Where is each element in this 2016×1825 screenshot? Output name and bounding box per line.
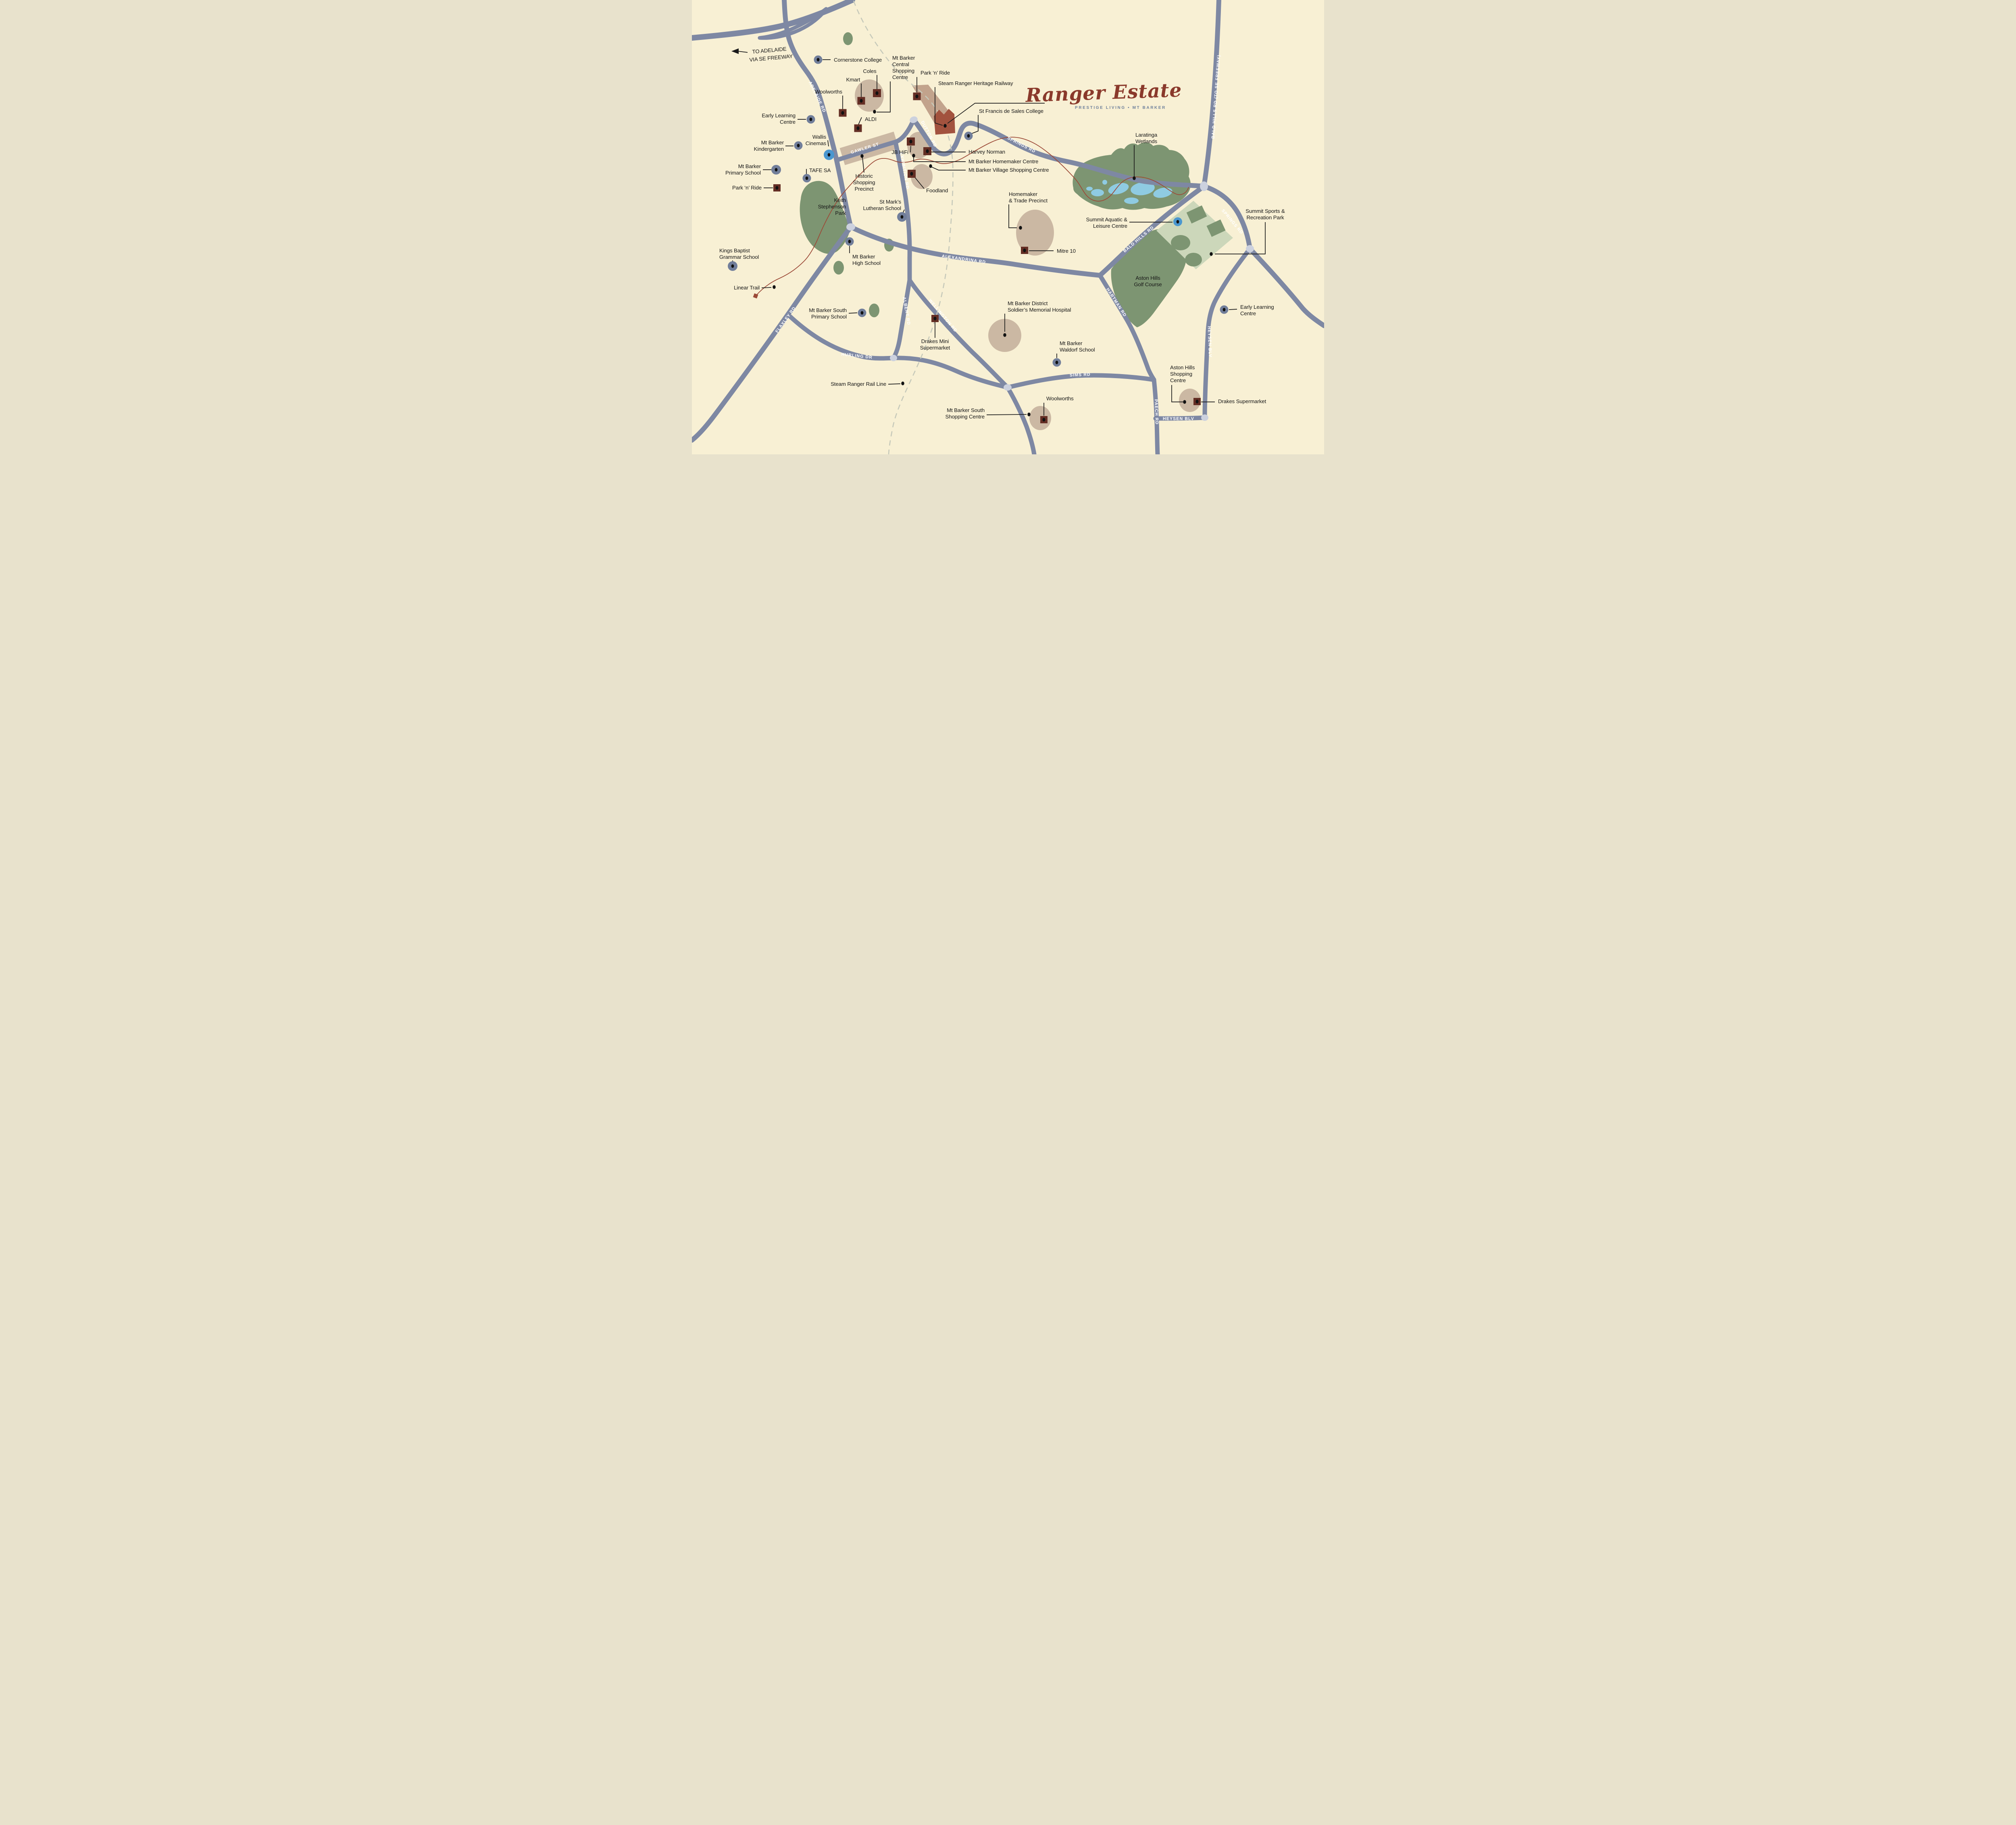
road-label-heysen-blv: HEYSEN BLV	[1163, 416, 1194, 421]
tafe-sa-dot	[803, 174, 811, 183]
road-label-sims-rd: SIMS RD	[1070, 372, 1091, 378]
tafe-sa-dot-inner	[806, 177, 808, 180]
cornerstone-college-dot-inner	[817, 58, 820, 62]
st-marks-dot	[897, 212, 907, 222]
label-leisure-centre: Leisure Centre	[1093, 223, 1127, 229]
label-summit-sports-: Summit Sports &	[1245, 208, 1285, 214]
label-park-n-ride: Park ‘n’ Ride	[732, 185, 762, 191]
label-woolworths: Woolworths	[815, 89, 842, 95]
summit-oval-1	[1171, 235, 1190, 250]
label-wetlands: Wetlands	[1135, 138, 1157, 144]
label-stephenson: Stephenson	[818, 204, 846, 210]
park-n-ride-left-marker	[773, 184, 781, 191]
lake-6	[1102, 180, 1107, 185]
lake-1	[1091, 189, 1104, 196]
ranger-estate-tagline: PRESTIGE LIVING • MT BARKER	[1075, 106, 1166, 110]
foodland-marker-dot	[910, 172, 913, 175]
early-learning-right-line	[1229, 309, 1237, 310]
label-primary-school: Primary School	[811, 314, 847, 320]
south-primary-dot	[858, 309, 866, 317]
wallis-cinemas-dot-inner	[828, 153, 831, 157]
label-aldi: ALDI	[865, 116, 877, 122]
label-mt-barker-south: Mt Barker South	[947, 407, 985, 413]
park-n-ride-left-marker-dot	[775, 186, 778, 189]
label-park: Park	[835, 210, 846, 216]
label-tafe-sa: TAFE SA	[809, 167, 831, 173]
central-sc-point	[873, 110, 876, 113]
kings-baptist-dot-inner	[731, 264, 734, 268]
label--trade-precinct: & Trade Precinct	[1009, 198, 1048, 204]
foodland-marker	[908, 170, 916, 178]
label-high-school: High School	[852, 260, 881, 266]
waldorf-dot-inner	[1056, 361, 1058, 364]
homemaker-centre-point	[912, 154, 915, 157]
label-shopping: Shopping	[1170, 371, 1192, 377]
woolworths-north-marker	[839, 109, 847, 117]
label-laratinga: Laratinga	[1135, 132, 1158, 138]
wallis-cinemas-dot	[824, 150, 834, 160]
kmart-marker	[858, 97, 865, 105]
linear-trail-point	[773, 285, 776, 289]
label-centre: Centre	[1170, 377, 1186, 383]
roundabout-heysen-corner	[1201, 414, 1208, 421]
label-cinemas: Cinemas	[806, 140, 827, 146]
roundabout-adelaide	[846, 223, 855, 231]
label-kindergarten: Kindergarten	[754, 146, 784, 152]
label-jb-hifi: JB HiFi	[891, 149, 908, 155]
label-centre: Centre	[780, 119, 796, 125]
primary-school-dot-inner	[775, 168, 778, 172]
summit-oval-2	[1185, 253, 1202, 266]
label-linear-trail: Linear Trail	[734, 285, 760, 291]
roundabout-albert-hurling	[890, 355, 897, 361]
linear-trail-line	[762, 287, 771, 288]
label-shopping: Shopping	[853, 179, 875, 185]
label-st-francis-de-sales-college: St Francis de Sales College	[979, 108, 1043, 114]
label-primary-school: Primary School	[725, 170, 761, 176]
high-school-dot-inner	[848, 240, 851, 243]
harvey-norman-marker	[923, 147, 931, 155]
mitre10-marker-dot	[1023, 248, 1026, 252]
label-steam-ranger-heritage-railway: Steam Ranger Heritage Railway	[938, 80, 1013, 86]
label-woolworths: Woolworths	[1046, 395, 1074, 402]
label-early-learning: Early Learning	[1240, 304, 1274, 310]
label-harvey-norman: Harvey Norman	[968, 149, 1005, 155]
hospital-point	[1003, 333, 1006, 337]
label-supermarket: Supermarket	[920, 345, 950, 351]
label-precinct: Precinct	[855, 186, 874, 192]
label-mitre-10: Mitre 10	[1057, 248, 1076, 254]
harvey-norman-marker-dot	[926, 149, 929, 153]
label-kings-baptist: Kings Baptist	[719, 248, 750, 254]
label-soldier-s-memorial-hospital: Soldier’s Memorial Hospital	[1008, 307, 1071, 313]
label-mt-barker-village-shopping-centre: Mt Barker Village Shopping Centre	[968, 167, 1049, 173]
kindergarten-dot	[794, 142, 803, 150]
mitre10-marker	[1021, 247, 1028, 254]
aquatic-centre-dot-inner	[1177, 220, 1179, 224]
label-keith: Keith	[834, 197, 846, 203]
jb-hifi-marker	[907, 137, 915, 146]
early-learning-right-dot-inner	[1223, 308, 1226, 312]
drakes-supermarket-marker-dot	[1195, 400, 1198, 403]
kings-baptist-dot	[728, 261, 737, 271]
label-golf-course: Golf Course	[1134, 281, 1162, 287]
label-waldorf-school: Waldorf School	[1060, 347, 1095, 353]
st-francis-dot-inner	[967, 134, 970, 138]
rail-line-point	[901, 381, 904, 385]
historic-precinct-point	[860, 154, 864, 158]
aquatic-centre-dot	[1173, 217, 1182, 226]
label-mt-barker-south: Mt Barker South	[809, 307, 847, 313]
kmart-marker-dot	[860, 99, 862, 102]
label-centre: Centre	[892, 74, 908, 80]
label-central: Central	[892, 61, 909, 67]
label-shopping: Shopping	[892, 68, 914, 74]
woolworths-south-marker-dot	[1042, 418, 1045, 421]
trade-precinct-point	[1019, 226, 1022, 229]
aldi-marker-dot	[856, 126, 859, 130]
drakes-supermarket-marker	[1193, 398, 1201, 405]
south-sc-point	[1027, 412, 1031, 416]
label-mt-barker: Mt Barker	[738, 163, 761, 169]
label-shopping-centre: Shopping Centre	[946, 414, 985, 420]
label-centre: Centre	[1240, 310, 1256, 316]
label-aston-hills: Aston Hills	[1170, 364, 1195, 370]
tree-1	[843, 32, 853, 45]
laratinga-point	[1133, 176, 1136, 180]
label-lutheran-school: Lutheran School	[863, 205, 901, 211]
label-drakes-supermarket: Drakes Supermarket	[1218, 398, 1266, 404]
cornerstone-college-dot	[814, 56, 823, 64]
high-school-dot	[846, 237, 854, 246]
label-historic: Historic	[855, 173, 873, 179]
road-label-paech-rd: PAECH RD	[1154, 399, 1159, 425]
lake-5	[1124, 198, 1139, 204]
label-recreation-park: Recreation Park	[1246, 214, 1284, 221]
rail-line-pointer	[888, 384, 900, 384]
label-st-mark-s: St Mark’s	[879, 199, 901, 205]
jb-hifi-marker-dot	[909, 139, 912, 143]
tree-4	[869, 304, 879, 317]
label-wallis: Wallis	[812, 134, 827, 140]
label-steam-ranger-rail-line: Steam Ranger Rail Line	[831, 381, 886, 387]
ranger-estate-map: ADELAIDE RDGAWLER STEXHIBITION RDDUTTON …	[692, 0, 1324, 454]
drakes-mini-marker	[931, 315, 939, 322]
railway-station-point	[943, 124, 947, 127]
early-learning-left-dot-inner	[810, 118, 812, 121]
early-learning-left-dot	[807, 115, 815, 124]
label-homemaker: Homemaker	[1009, 191, 1038, 197]
label-coles: Coles	[863, 68, 877, 74]
south-primary-line	[849, 313, 857, 313]
label-mt-barker: Mt Barker	[1060, 340, 1083, 346]
lake-7	[1086, 187, 1093, 191]
roundabout-wellington-sims	[1004, 384, 1012, 391]
kindergarten-dot-inner	[797, 144, 800, 148]
aston-sc-point	[1183, 400, 1186, 404]
label-mt-barker: Mt Barker	[852, 254, 875, 260]
label-early-learning: Early Learning	[762, 112, 796, 119]
roundabout-springs-heysen	[1246, 245, 1254, 252]
label-drakes-mini: Drakes Mini	[921, 338, 949, 344]
tree-3	[833, 261, 844, 275]
map-canvas: ADELAIDE RDGAWLER STEXHIBITION RDDUTTON …	[692, 0, 1324, 454]
summit-sports-point	[1210, 252, 1213, 256]
label-grammar-school: Grammar School	[719, 254, 759, 260]
woolworths-north-marker-dot	[841, 111, 844, 114]
south-primary-dot-inner	[861, 311, 864, 315]
park-n-ride-top-marker	[913, 93, 921, 100]
label-foodland: Foodland	[926, 187, 948, 194]
early-learning-right-dot	[1220, 306, 1229, 314]
label-park-n-ride: Park ‘n’ Ride	[921, 70, 950, 76]
label-summit-aquatic-: Summit Aquatic &	[1086, 216, 1128, 223]
label-mt-barker-homemaker-centre: Mt Barker Homemaker Centre	[968, 158, 1038, 164]
label-mt-barker: Mt Barker	[761, 139, 784, 146]
woolworths-south-marker	[1040, 416, 1048, 423]
primary-school-dot	[771, 165, 781, 175]
aldi-marker	[854, 125, 862, 132]
label-mt-barker-district: Mt Barker District	[1008, 300, 1048, 306]
south-shopping-centre-line	[987, 414, 1027, 415]
jb-hifi-line	[910, 146, 911, 152]
label-aston-hills: Aston Hills	[1135, 275, 1160, 281]
label-cornerstone-college: Cornerstone College	[834, 57, 882, 63]
coles-marker	[873, 89, 881, 97]
drakes-mini-marker-dot	[933, 316, 936, 320]
label-kmart: Kmart	[846, 77, 860, 83]
roundabout-bald-hills-springs	[1200, 181, 1208, 191]
village-centre-point	[929, 164, 932, 168]
waldorf-dot	[1053, 358, 1061, 367]
st-francis-dot	[964, 132, 973, 140]
coles-marker-dot	[875, 91, 878, 95]
park-n-ride-top-marker-dot	[915, 94, 918, 98]
st-marks-dot-inner	[901, 215, 904, 219]
label-mt-barker: Mt Barker	[892, 55, 915, 61]
